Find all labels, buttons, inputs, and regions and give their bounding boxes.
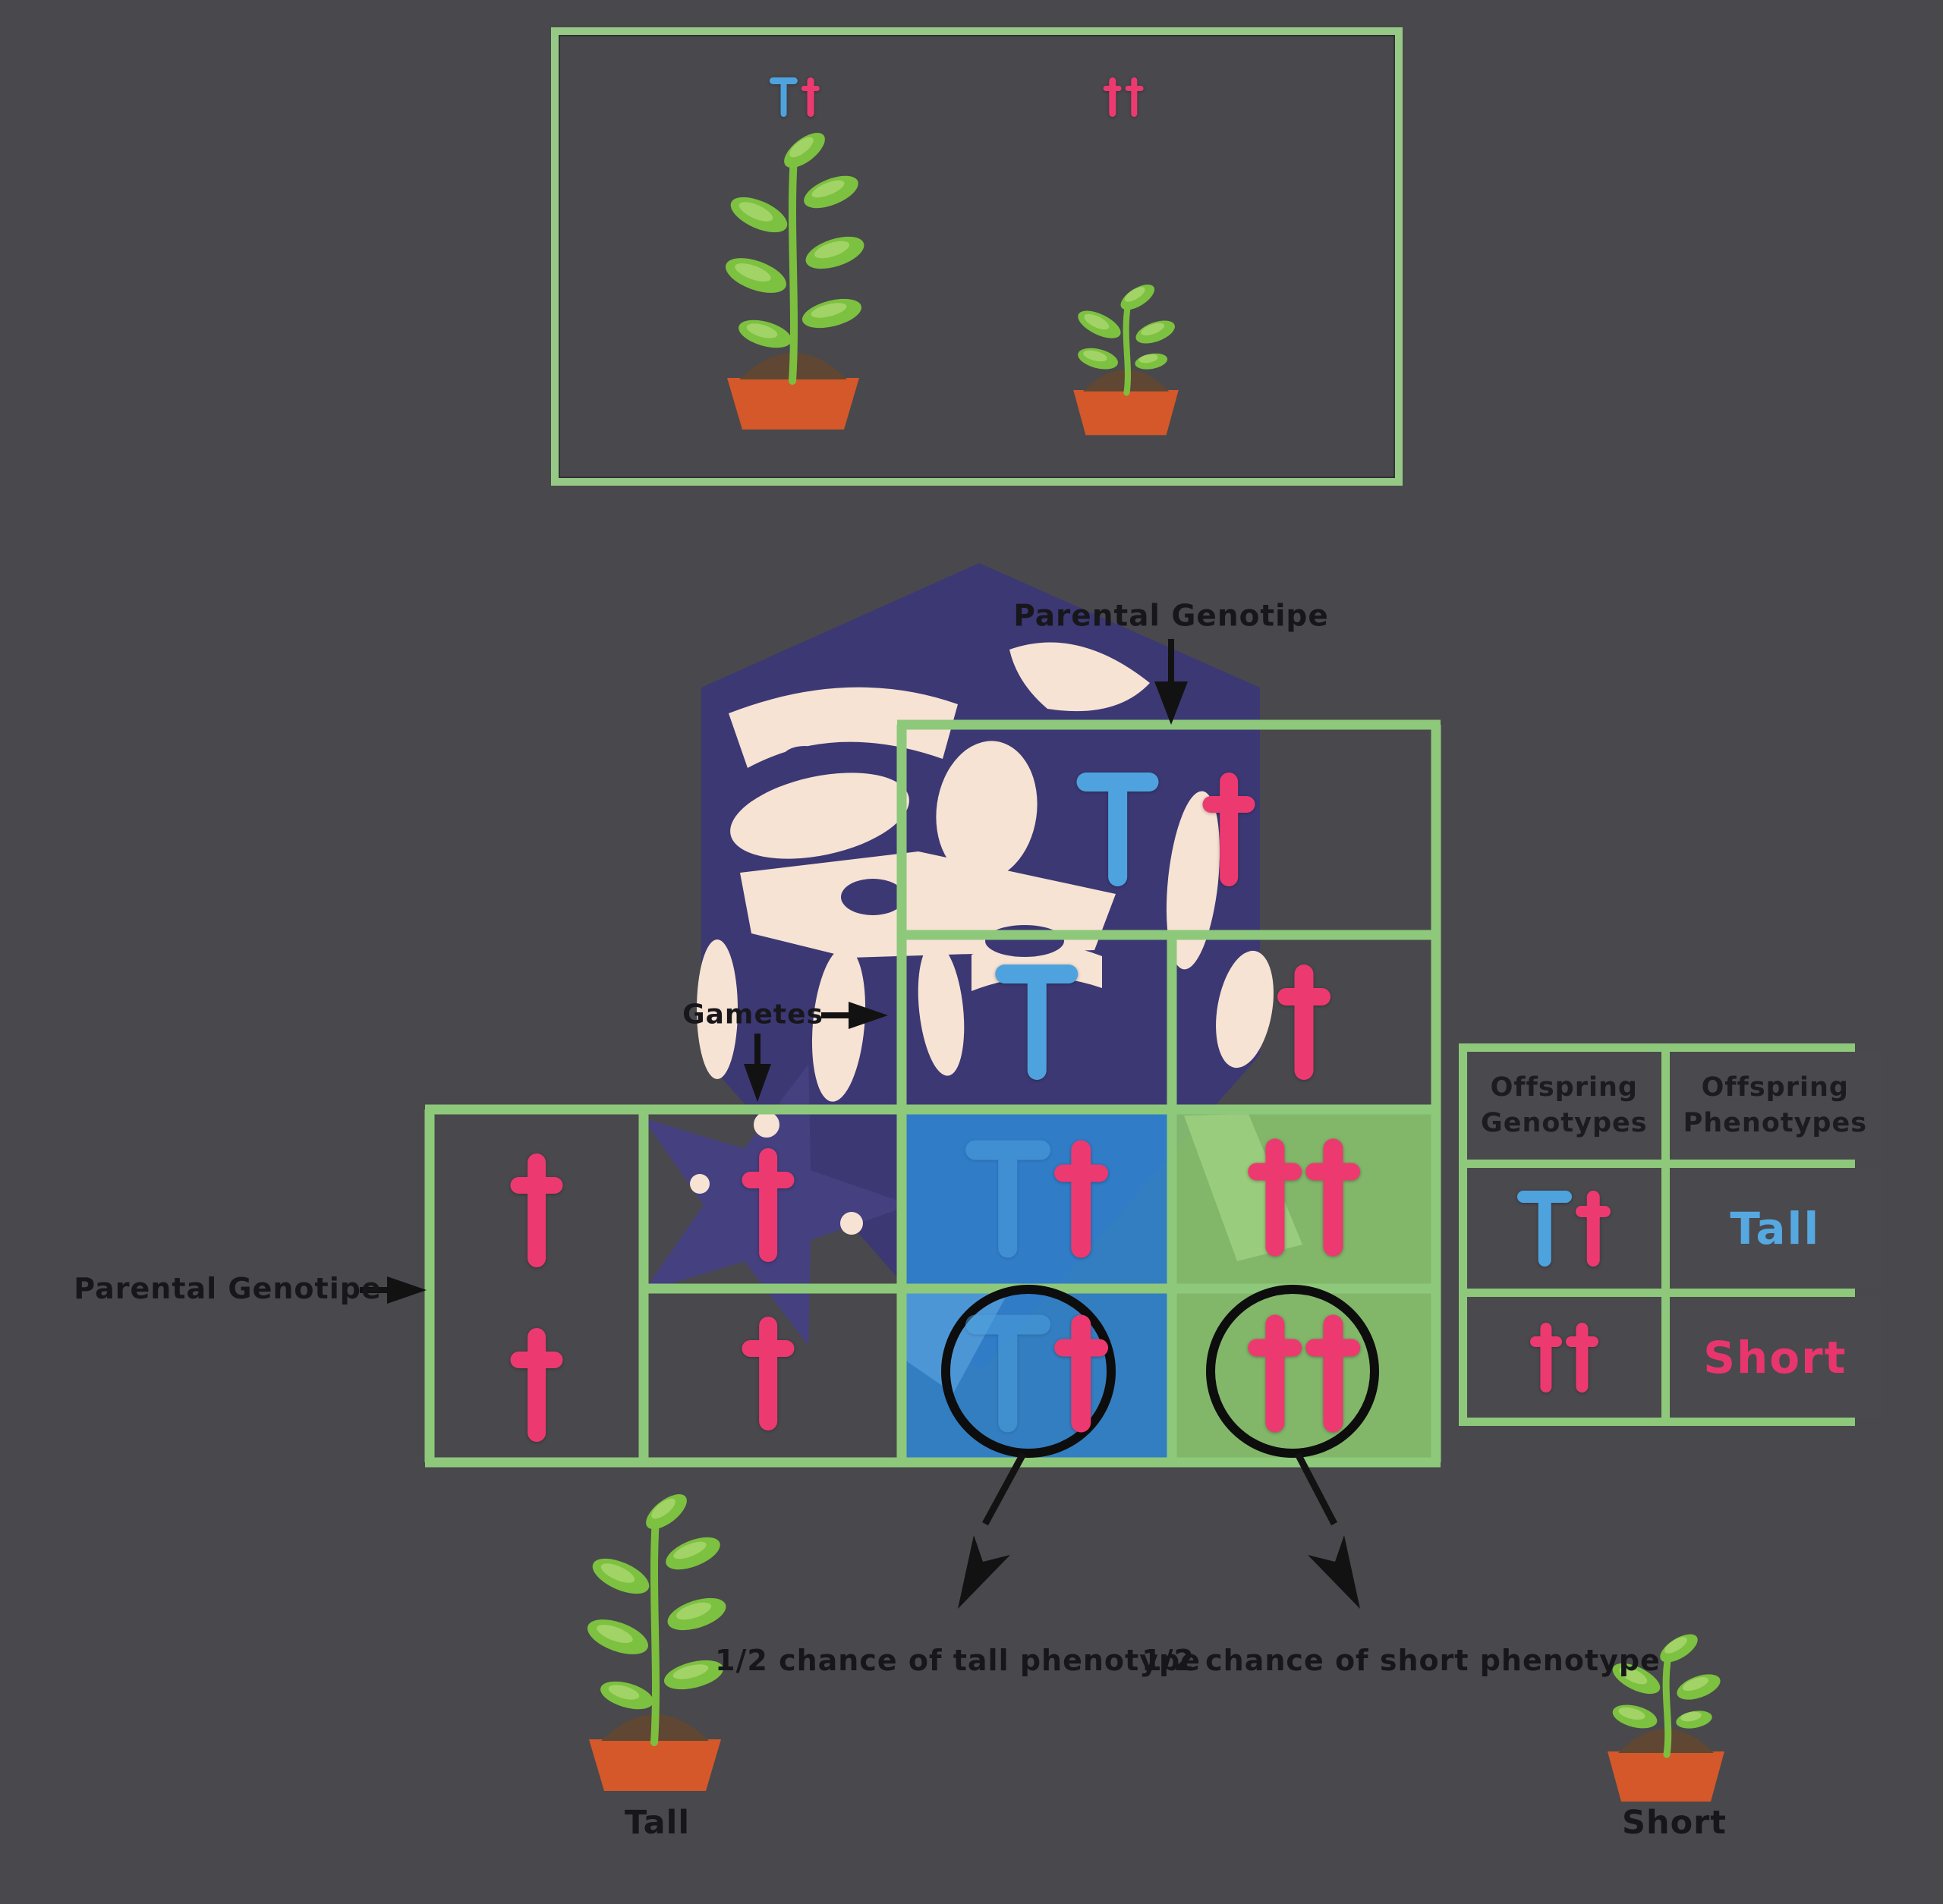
offspring-Tt-1 [965, 1141, 1108, 1258]
offspring-tt-2 [1248, 1315, 1360, 1433]
allele-t [1566, 1323, 1598, 1393]
allele-T [965, 1315, 1050, 1433]
gamete-t-row1 [742, 1148, 795, 1262]
specimen-box [551, 27, 1403, 486]
allele-t [1203, 773, 1255, 886]
allele-t [1054, 1141, 1108, 1258]
parental-genotype-label-left: Parental Genotipe [74, 1272, 381, 1305]
table-alleles-tt [1530, 1323, 1598, 1393]
allele-T [995, 965, 1078, 1080]
table-genotype-Tt [1467, 1168, 1661, 1289]
allele-t [1530, 1323, 1562, 1393]
allele-t [511, 1153, 563, 1267]
table-header-phenotypes: Offspring Phenotypes [1670, 1052, 1881, 1160]
allele-t [1248, 1315, 1302, 1433]
allele-T [770, 77, 798, 117]
short-chance-label: 1/2 chance of short phenotype [1142, 1644, 1661, 1677]
parent-genotype-tt [511, 1153, 563, 1442]
parental-genotype-label-top: Parental Genotipe [1013, 600, 1329, 634]
allele-t [1576, 1191, 1611, 1267]
allele-t [1104, 77, 1122, 117]
allele-t [1126, 77, 1144, 117]
allele-T [965, 1141, 1050, 1258]
table-phenotype-short: Short [1670, 1297, 1881, 1418]
allele-T [1517, 1191, 1572, 1267]
gamete-t-row2 [742, 1317, 795, 1430]
table-alleles-Tt [1517, 1191, 1611, 1267]
allele-t [742, 1317, 795, 1430]
offspring-Tt-2 [965, 1315, 1108, 1433]
tall-chance-label: 1/2 chance of tall phenotype [715, 1644, 1201, 1677]
tall-plant-bottom [583, 1487, 730, 1791]
offspring-table: Offspring Genotypes Offspring Phenotypes… [1459, 1043, 1855, 1426]
allele-t [1306, 1139, 1360, 1257]
allele-t [1054, 1315, 1108, 1433]
allele-t [1306, 1315, 1360, 1433]
allele-t [742, 1148, 795, 1262]
allele-t [1248, 1139, 1302, 1257]
allele-T [1077, 773, 1159, 886]
topbox-genotype-Tt [770, 77, 820, 117]
table-genotype-tt [1467, 1297, 1661, 1418]
short-plant-label: Short [1622, 1804, 1727, 1842]
table-header-genotypes: Offspring Genotypes [1467, 1052, 1661, 1160]
parent-genotype-Tt [1077, 773, 1255, 886]
allele-t [511, 1328, 563, 1442]
gametes-label: Gametes [682, 999, 823, 1031]
gamete-T [995, 965, 1078, 1080]
genetics-diagram: Offspring Genotypes Offspring Phenotypes… [0, 0, 1943, 1904]
tall-plant-label: Tall [625, 1804, 690, 1842]
gamete-t [1277, 965, 1330, 1080]
phenotype-short-text: Short [1703, 1332, 1847, 1383]
allele-t [801, 77, 820, 117]
arrow-short-result [1298, 1454, 1360, 1609]
phenotype-tall-text: Tall [1730, 1203, 1820, 1254]
offspring-tt-1 [1248, 1139, 1360, 1257]
arrow-tall-result [958, 1454, 1023, 1609]
topbox-genotype-tt [1104, 77, 1144, 117]
allele-t [1277, 965, 1330, 1080]
table-phenotype-tall: Tall [1670, 1168, 1881, 1289]
